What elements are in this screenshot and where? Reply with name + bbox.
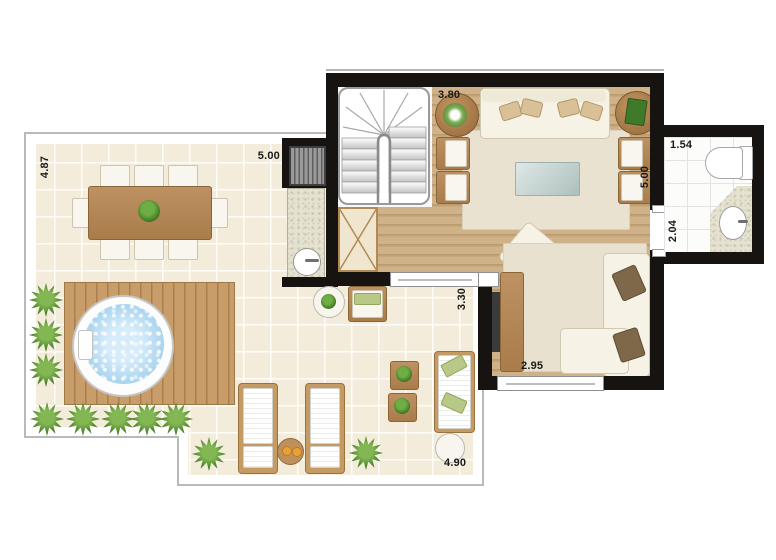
staircase [336,85,432,207]
dim-bath-depth: 2.04 [667,211,679,251]
tv-room-window [497,376,604,391]
wall-bath-south [664,252,764,264]
side-table-plant [321,294,336,309]
dim-bath-width: 1.54 [670,139,702,151]
dim-stair-hall: 3.80 [438,89,470,101]
wall-right-upper [650,73,664,210]
wall-bath-east [752,125,764,264]
bath-sink [719,206,747,240]
dim-terrace-depth: 4.87 [39,147,51,187]
lounger-mattress [243,388,273,444]
toilet-bowl [705,147,743,179]
sofa-backrest [482,90,606,102]
hot-tub-steps [78,330,93,360]
drink-icon [292,447,302,457]
hot-tub-water [84,304,164,384]
drink-icon [282,446,292,456]
tv-icon [492,292,500,352]
wall-living-south [326,272,390,286]
floor-plan: 4.87 5.00 3.80 5.00 1.54 2.04 3.30 2.95 … [0,0,776,560]
counter-sink [293,248,321,276]
wall-bath-north [664,125,764,137]
dim-tv-width: 2.95 [521,360,553,372]
dim-terrace-bottom: 4.90 [444,457,476,469]
terrace-chair-cushion [354,293,381,305]
flower-arrangement [443,103,467,127]
armchair-cushion [445,174,467,201]
sink-faucet-icon [738,220,748,223]
terrace-door [478,272,499,287]
exterior-hairline [326,69,664,71]
sink-faucet-icon [305,259,319,262]
lounger-footrest [243,446,273,468]
under-stair-void [338,207,378,272]
wall-tv-west [478,272,492,390]
window-mullion [506,383,594,385]
decor-tray [624,98,647,127]
armchair-cushion [445,140,467,167]
dim-living-depth: 5.00 [639,157,651,197]
tv-sideboard [500,272,524,372]
dim-terrace-width: 5.00 [248,150,280,162]
wall-right-lower [650,250,664,390]
coffee-table [515,162,580,196]
dining-chair [210,198,228,228]
table-centerpiece-plant [138,200,160,222]
lounger-mattress [310,388,340,444]
dim-tv-depth: 3.30 [456,279,468,319]
wall-top [326,73,664,87]
potted-plant [394,398,410,414]
lounger-footrest [310,446,340,468]
potted-plant [396,366,412,382]
barbecue-grill [289,146,326,186]
wall-left [326,73,338,286]
